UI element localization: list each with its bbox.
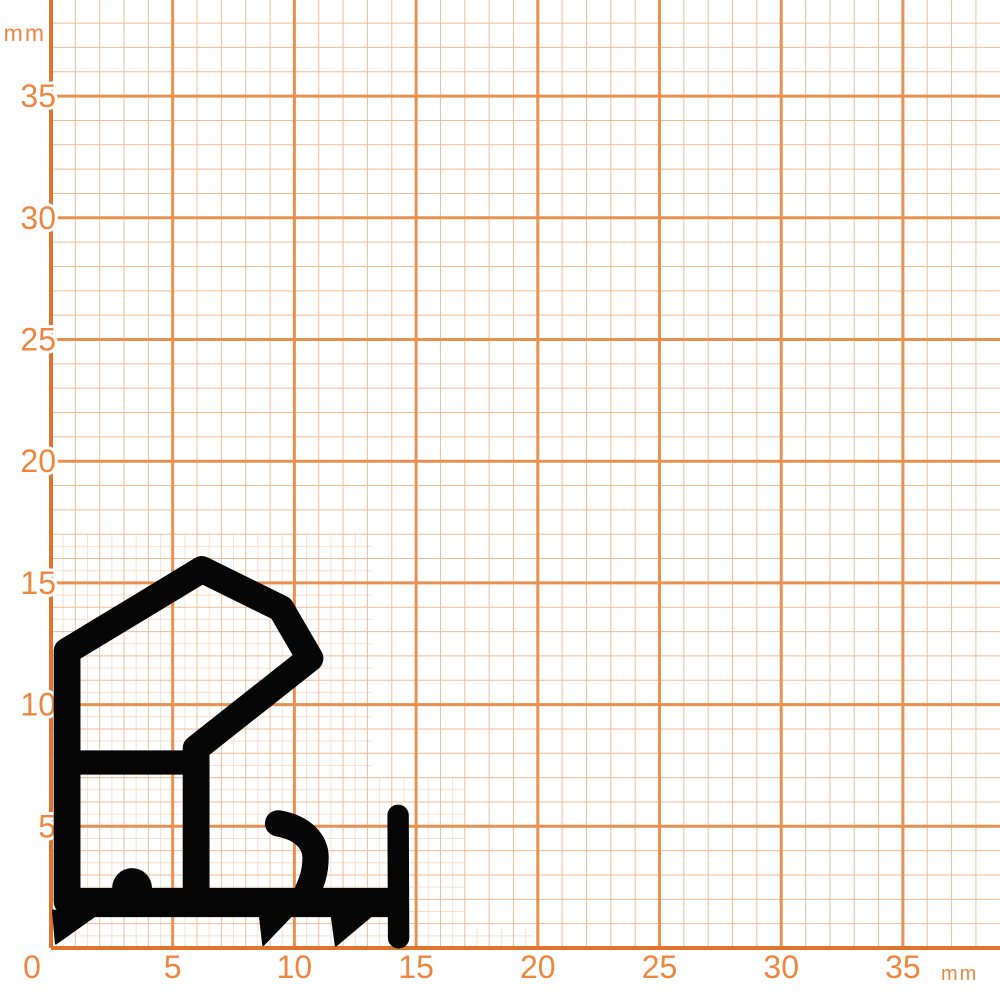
y-axis-unit-label: mm	[4, 20, 46, 46]
x-axis-tick-label: 20	[520, 949, 556, 985]
profile-end-post	[398, 815, 399, 938]
x-axis-tick-label: 0	[23, 949, 41, 985]
profile-diagram: 5101520253035mm05101520253035mm	[0, 0, 1000, 1000]
x-axis-tick-label: 5	[164, 949, 182, 985]
x-axis-tick-label: 15	[398, 949, 434, 985]
x-axis-tick-label: 25	[642, 949, 678, 985]
profile-dome-bump	[112, 868, 152, 908]
x-axis-tick-label: 10	[277, 949, 313, 985]
paper-background	[0, 0, 1000, 1000]
y-axis-tick-label: 20	[20, 443, 56, 479]
x-axis-tick-label: 30	[763, 949, 799, 985]
y-axis-tick-label: 25	[20, 322, 56, 358]
y-axis-tick-label: 30	[20, 200, 56, 236]
x-axis-unit-label: mm	[941, 963, 978, 985]
y-axis-tick-label: 5	[38, 808, 56, 844]
graph-paper-page: 5101520253035mm05101520253035mm	[0, 0, 1000, 1000]
x-axis-tick-label: 35	[885, 949, 921, 985]
y-axis-tick-label: 35	[20, 78, 56, 114]
y-axis-tick-label: 15	[20, 565, 56, 601]
y-axis-tick-label: 10	[20, 687, 56, 723]
